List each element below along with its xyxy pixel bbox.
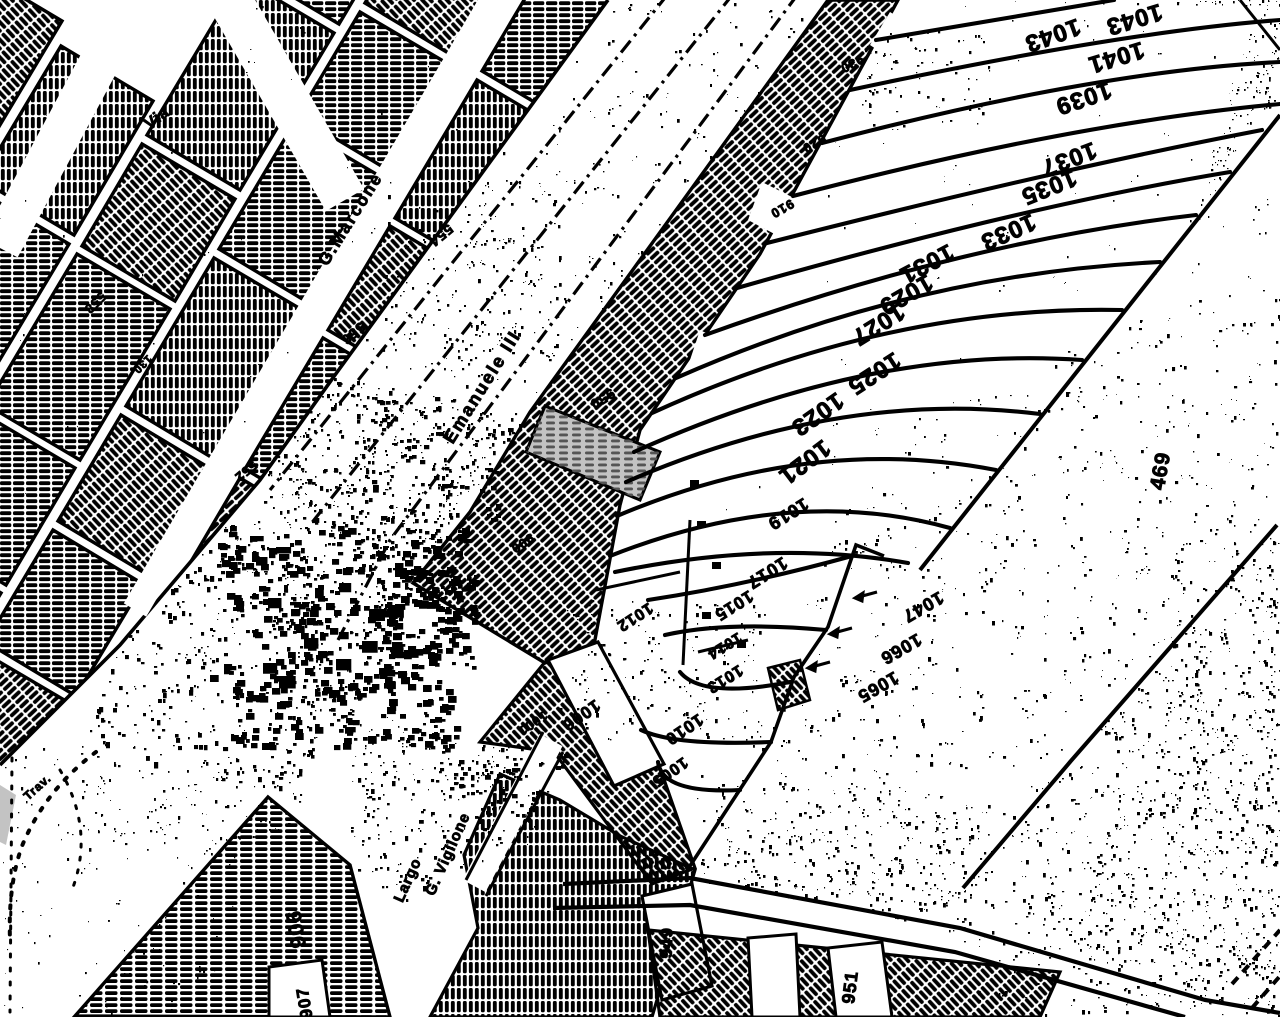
svg-text:951: 951: [838, 970, 862, 1005]
svg-text:949: 949: [656, 927, 676, 959]
